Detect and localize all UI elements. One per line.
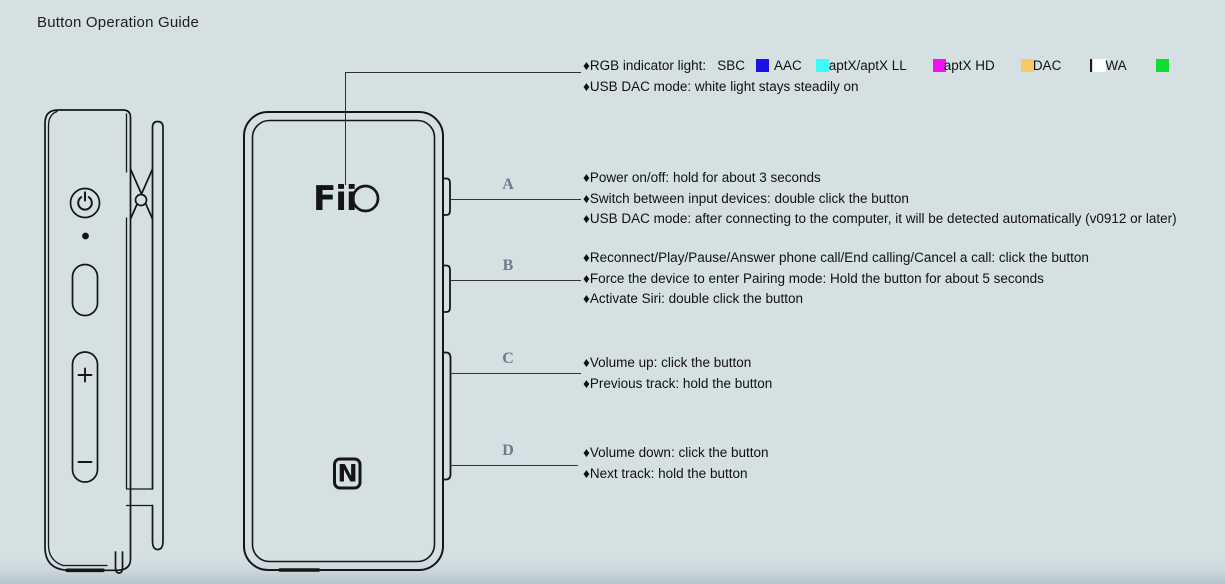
nfc-logo-n: N	[337, 460, 357, 488]
button-a	[443, 179, 450, 216]
section-b-line-2: ♦Force the device to enter Pairing mode:…	[583, 269, 1089, 290]
codec-label: DAC	[1033, 58, 1062, 73]
fiio-logo-text: Fii	[313, 179, 357, 219]
section-c-line-1: ♦Volume up: click the button	[583, 353, 772, 374]
section-c-text: ♦Volume up: click the button ♦Previous t…	[583, 353, 772, 394]
usb-dac-mode-note: ♦USB DAC mode: white light stays steadil…	[583, 76, 859, 98]
section-b-text: ♦Reconnect/Play/Pause/Answer phone call/…	[583, 248, 1089, 310]
button-cd-rocker	[443, 353, 451, 480]
section-a-line-1: ♦Power on/off: hold for about 3 seconds	[583, 168, 1177, 189]
fiio-logo-o	[353, 186, 378, 211]
codec-label: aptX/aptX LL	[829, 58, 907, 73]
codec-swatch-green	[1156, 59, 1169, 72]
leader-line-d	[450, 465, 578, 466]
side-body-inner-edge	[49, 112, 108, 566]
button-label-d: D	[488, 442, 528, 462]
rgb-callout-vertical-line	[345, 72, 346, 185]
button-label-b: B	[488, 257, 528, 277]
codec-item-aptx-hd: aptX HD	[933, 58, 995, 73]
section-a-line-2: ♦Switch between input devices: double cl…	[583, 189, 1177, 210]
codec-item-green	[1156, 59, 1169, 72]
rgb-legend: ♦RGB indicator light: SBC AAC aptX/aptX …	[583, 54, 1169, 76]
codec-swatch-blue	[756, 59, 769, 72]
codec-item-aac: AAC	[756, 58, 802, 73]
section-b-line-1: ♦Reconnect/Play/Pause/Answer phone call/…	[583, 248, 1089, 269]
clip-arm	[153, 122, 164, 550]
button-b	[443, 266, 450, 313]
codec-sbc: SBC	[717, 58, 745, 73]
clip-pivot-hole	[136, 195, 147, 206]
clipped-letter-artifact	[1090, 59, 1092, 72]
page-title: Button Operation Guide	[37, 14, 199, 31]
codec-item-wa: WA	[1090, 58, 1126, 73]
bottom-shade-bar	[0, 558, 1225, 584]
section-d-line-1: ♦Volume down: click the button	[583, 443, 769, 464]
rgb-callout-horizontal-line	[345, 72, 581, 73]
codec-label: aptX HD	[944, 58, 995, 73]
section-d-line-2: ♦Next track: hold the button	[583, 464, 769, 485]
section-a-line-3: ♦USB DAC mode: after connecting to the c…	[583, 209, 1177, 230]
button-operation-guide-page: Button Operation Guide Fii	[0, 0, 1225, 584]
leader-line-b	[450, 280, 581, 281]
device-side-view	[38, 105, 172, 578]
multifunction-button	[73, 265, 98, 316]
device-front-view: Fii N	[238, 105, 473, 583]
codec-label: AAC	[774, 58, 802, 73]
codec-item-dac: DAC	[1021, 58, 1062, 73]
rgb-legend-heading: ♦RGB indicator light:	[583, 58, 706, 73]
section-a-text: ♦Power on/off: hold for about 3 seconds …	[583, 168, 1177, 230]
power-icon	[78, 192, 92, 209]
side-body-outline	[45, 110, 131, 570]
volume-plus-icon	[79, 369, 92, 382]
section-b-line-3: ♦Activate Siri: double click the button	[583, 289, 1089, 310]
leader-line-c	[450, 373, 581, 374]
codec-label: WA	[1105, 58, 1126, 73]
codec-swatch-cyan	[816, 59, 829, 72]
codec-item-aptx: aptX/aptX LL	[816, 58, 907, 73]
led-indicator-dot	[82, 233, 89, 240]
leader-line-a	[450, 199, 581, 200]
section-d-text: ♦Volume down: click the button ♦Next tra…	[583, 443, 769, 484]
button-label-a: A	[488, 176, 528, 196]
button-label-c: C	[488, 350, 528, 370]
section-c-line-2: ♦Previous track: hold the button	[583, 374, 772, 395]
